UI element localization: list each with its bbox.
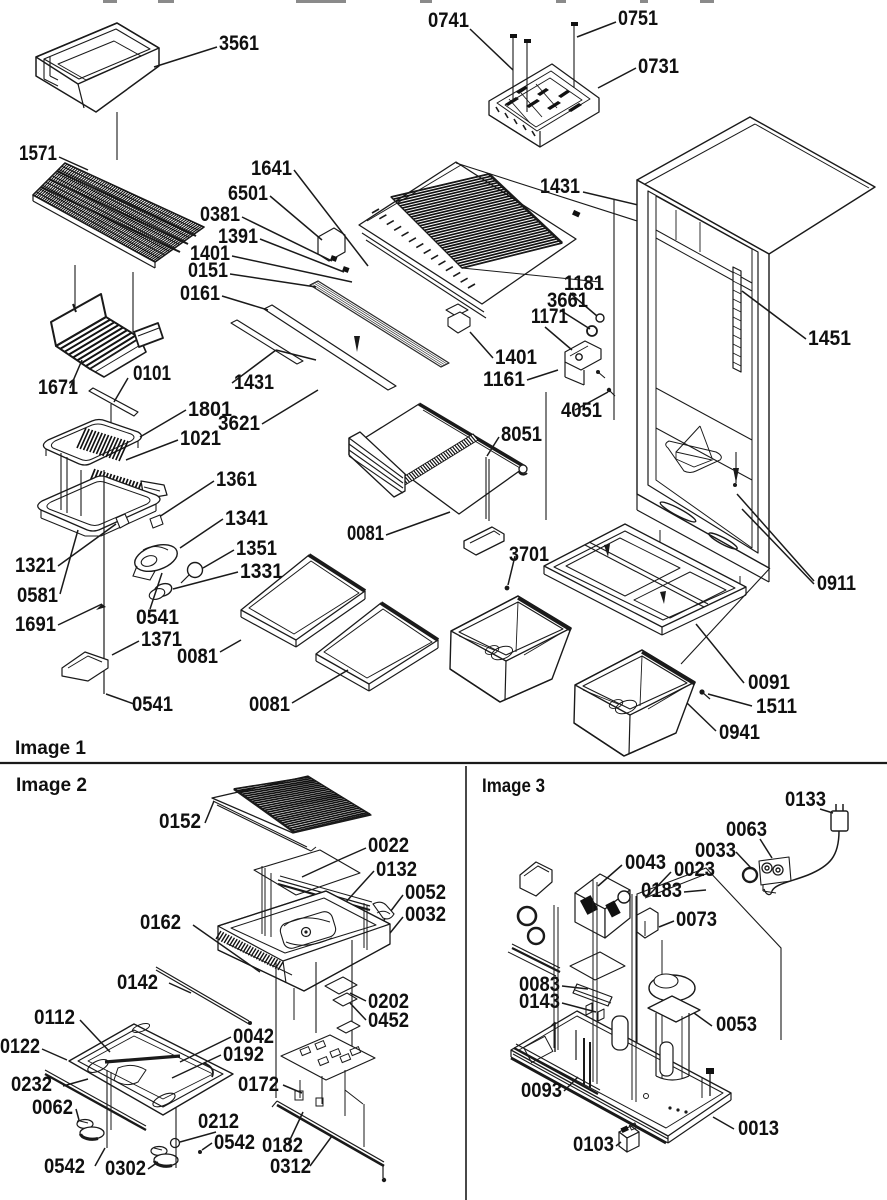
svg-text:0542: 0542 [214,1131,255,1154]
svg-text:0541: 0541 [136,606,179,629]
svg-text:0192: 0192 [223,1043,264,1066]
svg-text:0081: 0081 [347,522,384,545]
svg-text:0022: 0022 [368,834,409,857]
svg-text:0103: 0103 [573,1133,614,1156]
svg-text:0751: 0751 [618,7,658,30]
svg-text:1431: 1431 [234,371,274,394]
svg-text:0132: 0132 [376,858,417,881]
svg-text:0151: 0151 [188,259,228,282]
svg-text:0941: 0941 [719,721,760,744]
svg-text:4051: 4051 [561,399,602,422]
svg-text:0232: 0232 [11,1073,52,1096]
svg-text:1361: 1361 [216,468,257,491]
svg-text:0212: 0212 [198,1110,239,1133]
svg-text:0381: 0381 [200,203,240,226]
svg-text:0081: 0081 [249,693,290,716]
svg-text:0911: 0911 [817,572,856,595]
svg-text:0023: 0023 [674,858,715,881]
svg-text:0091: 0091 [748,671,790,694]
svg-text:0053: 0053 [716,1013,757,1036]
svg-text:Image 1: Image 1 [15,738,86,759]
svg-text:1341: 1341 [225,507,268,530]
svg-text:1691: 1691 [15,613,56,636]
svg-text:1431: 1431 [540,175,580,198]
svg-text:0062: 0062 [32,1096,73,1119]
svg-text:0101: 0101 [133,362,171,385]
svg-text:8051: 8051 [501,423,542,446]
svg-text:0063: 0063 [726,818,767,841]
svg-text:0112: 0112 [34,1006,75,1029]
svg-text:0032: 0032 [405,903,446,926]
svg-text:0013: 0013 [738,1117,779,1140]
svg-text:0183: 0183 [641,879,682,902]
svg-text:1401: 1401 [495,346,537,369]
svg-text:1451: 1451 [808,327,851,350]
svg-text:0302: 0302 [105,1157,146,1180]
svg-text:1641: 1641 [251,157,292,180]
svg-text:0541: 0541 [132,693,173,716]
svg-text:1021: 1021 [180,427,221,450]
svg-text:1321: 1321 [15,554,56,577]
svg-text:0133: 0133 [785,788,826,811]
svg-text:6501: 6501 [228,182,268,205]
svg-text:0731: 0731 [638,55,679,78]
svg-text:0073: 0073 [676,908,717,931]
svg-text:Image 2: Image 2 [16,775,87,796]
svg-text:0452: 0452 [368,1009,409,1032]
svg-text:3561: 3561 [219,32,259,55]
svg-text:0161: 0161 [180,282,220,305]
svg-text:0542: 0542 [44,1155,85,1178]
svg-text:1571: 1571 [19,142,57,165]
svg-text:0152: 0152 [159,810,201,833]
svg-text:0182: 0182 [262,1134,303,1157]
svg-text:0081: 0081 [177,645,218,668]
svg-text:0142: 0142 [117,971,158,994]
svg-text:0043: 0043 [625,851,666,874]
svg-text:1511: 1511 [756,695,797,718]
svg-text:1171: 1171 [531,305,568,328]
svg-text:0093: 0093 [521,1079,562,1102]
svg-text:0172: 0172 [238,1073,279,1096]
svg-text:1351: 1351 [236,537,277,560]
svg-text:3701: 3701 [509,543,549,566]
svg-text:1161: 1161 [483,368,525,391]
svg-text:0052: 0052 [405,881,446,904]
svg-text:0312: 0312 [270,1155,311,1178]
svg-text:Image 3: Image 3 [482,776,545,797]
svg-text:0162: 0162 [140,911,181,934]
svg-text:0122: 0122 [0,1035,40,1058]
svg-text:0741: 0741 [428,9,469,32]
svg-text:0581: 0581 [17,584,58,607]
svg-text:3621: 3621 [218,412,260,435]
svg-text:1331: 1331 [240,560,283,583]
svg-text:1671: 1671 [38,376,78,399]
